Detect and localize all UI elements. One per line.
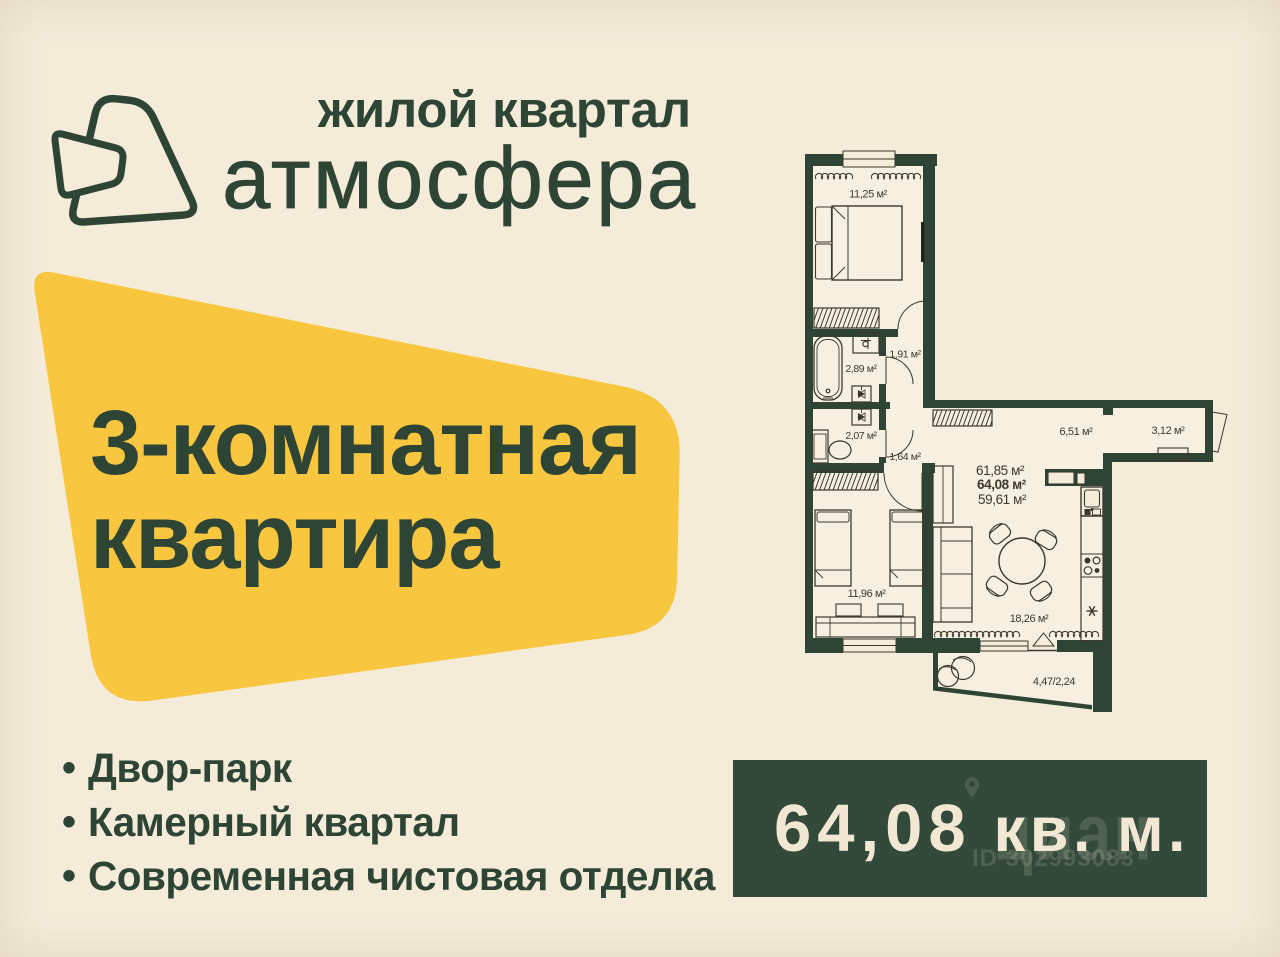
svg-text:11,25 м²: 11,25 м² [849,189,888,201]
svg-text:2,07 м²: 2,07 м² [845,430,877,442]
svg-text:2,89 м²: 2,89 м² [845,363,877,375]
svg-text:18,26 м²: 18,26 м² [1010,613,1049,625]
svg-text:1,64 м²: 1,64 м² [889,451,921,463]
svg-text:1,91 м²: 1,91 м² [889,349,921,361]
svg-text:3,12 м²: 3,12 м² [1152,425,1186,437]
svg-text:4,47/2,24: 4,47/2,24 [1033,676,1076,688]
svg-text:61,85 м²: 61,85 м² [976,463,1025,478]
svg-text:59,61 м²: 59,61 м² [978,492,1027,507]
svg-text:11,96 м²: 11,96 м² [848,588,887,600]
svg-text:64,08 м²: 64,08 м² [977,477,1027,492]
svg-text:6,51 м²: 6,51 м² [1060,426,1094,438]
